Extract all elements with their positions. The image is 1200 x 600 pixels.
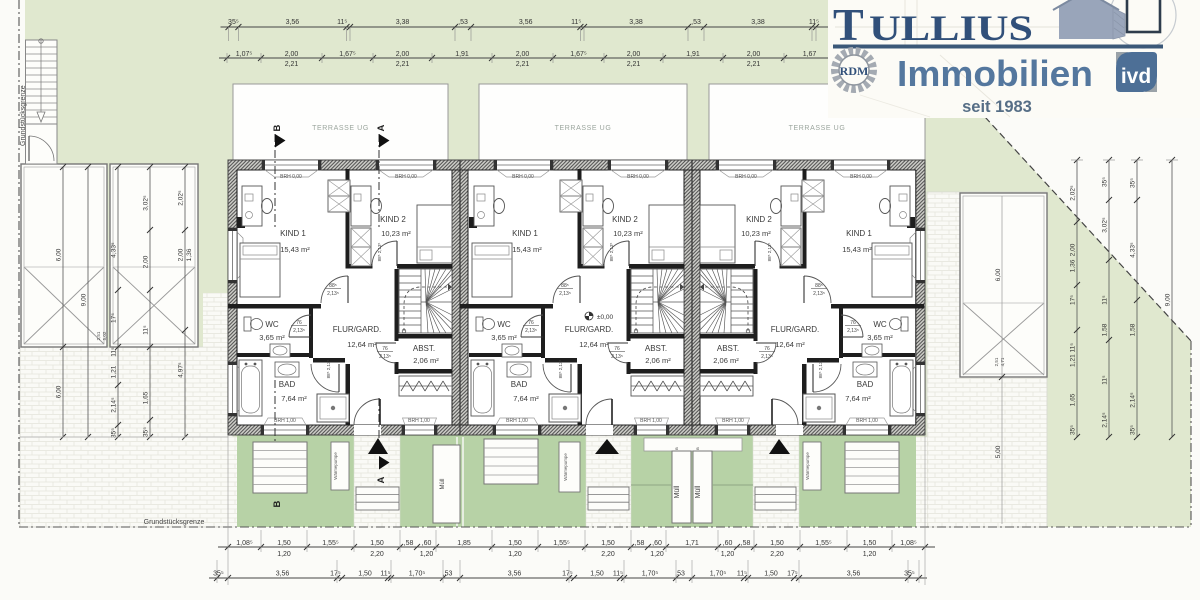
svg-text:BRH 1,00: BRH 1,00 <box>856 418 878 424</box>
svg-text:88⁵ 2,13⁵: 88⁵ 2,13⁵ <box>326 359 331 378</box>
svg-text:,53: ,53 <box>458 19 468 26</box>
svg-text:ABST.: ABST. <box>717 344 739 353</box>
svg-text:1,55⁵: 1,55⁵ <box>553 540 570 547</box>
svg-text:1,67⁵: 1,67⁵ <box>339 51 356 58</box>
svg-text:BRH 0,00: BRH 0,00 <box>280 174 302 180</box>
svg-text:BAD: BAD <box>279 380 296 389</box>
svg-text:Müll: Müll <box>440 478 446 489</box>
svg-text:2,14⁵: 2,14⁵ <box>111 397 118 413</box>
svg-text:BRH 1,00: BRH 1,00 <box>640 418 662 424</box>
svg-text:11⁵: 11⁵ <box>571 19 581 26</box>
svg-text:9,00: 9,00 <box>1165 293 1172 306</box>
svg-text:2,14⁵: 2,14⁵ <box>1102 412 1109 428</box>
svg-text:2,06 m²: 2,06 m² <box>413 356 439 365</box>
svg-text:2,13⁵: 2,13⁵ <box>327 291 339 297</box>
svg-text:1,20: 1,20 <box>420 551 434 558</box>
svg-text:2,06 m²: 2,06 m² <box>645 356 671 365</box>
svg-text:2,20: 2,20 <box>770 551 784 558</box>
svg-text:FLUR/GARD.: FLUR/GARD. <box>771 325 819 334</box>
svg-text:10,23 m²: 10,23 m² <box>381 229 411 238</box>
svg-text:35⁵: 35⁵ <box>1070 425 1077 435</box>
svg-text:76: 76 <box>850 320 856 326</box>
svg-text:,60: ,60 <box>422 540 432 547</box>
svg-text:1,50: 1,50 <box>358 571 372 578</box>
svg-text:Wärmepumpe: Wärmepumpe <box>805 452 810 480</box>
svg-text:BRH 0,00: BRH 0,00 <box>395 174 417 180</box>
svg-text:BRH 1,00: BRH 1,00 <box>274 418 296 424</box>
svg-text:3,65 m²: 3,65 m² <box>491 333 517 342</box>
svg-text:76: 76 <box>382 346 388 352</box>
svg-text:3,56: 3,56 <box>286 19 300 26</box>
svg-text:17⁵: 17⁵ <box>787 571 798 578</box>
svg-text:1,67⁵: 1,67⁵ <box>570 51 587 58</box>
svg-text:11⁵: 11⁵ <box>809 19 819 26</box>
svg-text:4,33⁵: 4,33⁵ <box>1130 242 1137 258</box>
svg-text:2,13⁵: 2,13⁵ <box>813 291 825 297</box>
svg-text:2,13⁵: 2,13⁵ <box>293 328 305 334</box>
svg-text:35⁵: 35⁵ <box>213 571 224 578</box>
svg-text:35⁵: 35⁵ <box>228 19 239 26</box>
svg-text:2,21: 2,21 <box>747 61 761 68</box>
svg-text:FLUR/GARD.: FLUR/GARD. <box>565 325 613 334</box>
svg-text:,53: ,53 <box>443 571 453 578</box>
svg-text:3,65 m²: 3,65 m² <box>259 333 285 342</box>
svg-text:2,02⁵: 2,02⁵ <box>1070 185 1077 201</box>
svg-text:76: 76 <box>764 346 770 352</box>
svg-text:FLUR/GARD.: FLUR/GARD. <box>333 325 381 334</box>
svg-text:6,00: 6,00 <box>56 385 63 398</box>
svg-text:2,00: 2,00 <box>396 51 410 58</box>
svg-text:1,20: 1,20 <box>650 551 664 558</box>
svg-text:2,21: 2,21 <box>285 61 299 68</box>
svg-text:35⁵: 35⁵ <box>143 427 150 437</box>
svg-text:TERRASSE UG: TERRASSE UG <box>555 125 612 132</box>
svg-text:BAD: BAD <box>857 380 874 389</box>
svg-text:7,64 m²: 7,64 m² <box>845 394 871 403</box>
svg-text:2,13⁵: 2,13⁵ <box>761 354 773 360</box>
svg-text:7,64 m²: 7,64 m² <box>281 394 307 403</box>
svg-text:1,20: 1,20 <box>508 551 522 558</box>
svg-text:1,65: 1,65 <box>1070 393 1077 406</box>
svg-text:1,50: 1,50 <box>764 571 778 578</box>
svg-text:ivd: ivd <box>1121 65 1151 88</box>
svg-text:BRH 1,00: BRH 1,00 <box>722 418 744 424</box>
svg-text:WC: WC <box>873 320 887 329</box>
svg-text:11⁵: 11⁵ <box>613 571 623 578</box>
svg-text:88⁵ 2,13⁵: 88⁵ 2,13⁵ <box>767 242 772 261</box>
svg-text:2,02⁵: 2,02⁵ <box>178 190 185 206</box>
svg-text:BRH 0,00: BRH 0,00 <box>627 174 649 180</box>
svg-text:,58: ,58 <box>741 540 751 547</box>
svg-text:KIND 2: KIND 2 <box>612 215 638 224</box>
svg-text:17⁵: 17⁵ <box>562 571 573 578</box>
svg-text:Grundstücksgrenze: Grundstücksgrenze <box>20 85 27 146</box>
svg-text:1,58: 1,58 <box>1102 323 1109 336</box>
svg-text:3,56: 3,56 <box>508 571 522 578</box>
svg-text:1,71: 1,71 <box>685 540 699 547</box>
svg-text:1,50: 1,50 <box>770 540 784 547</box>
svg-text:76: 76 <box>528 320 534 326</box>
svg-text:6,00: 6,00 <box>995 268 1002 281</box>
svg-text:11⁵: 11⁵ <box>143 325 150 335</box>
svg-text:BAD: BAD <box>511 380 528 389</box>
svg-text:Müll: Müll <box>674 485 681 498</box>
svg-text:B: B <box>272 124 283 131</box>
svg-text:2,00: 2,00 <box>178 248 185 261</box>
svg-text:17⁵: 17⁵ <box>111 313 118 323</box>
svg-text:1,50: 1,50 <box>370 540 384 547</box>
svg-text:3,56: 3,56 <box>519 19 533 26</box>
svg-text:4,71: 4,71 <box>1000 357 1005 366</box>
svg-text:1,08⁵: 1,08⁵ <box>236 540 253 547</box>
svg-text:2,20: 2,20 <box>370 551 384 558</box>
svg-text:76: 76 <box>296 320 302 326</box>
svg-text:KIND 1: KIND 1 <box>512 229 538 238</box>
svg-text:B: B <box>674 447 679 450</box>
svg-text:6,00: 6,00 <box>56 248 63 261</box>
svg-text:1,50: 1,50 <box>863 540 877 547</box>
svg-text:KIND 2: KIND 2 <box>380 215 406 224</box>
svg-text:,53: ,53 <box>691 19 701 26</box>
svg-text:17⁵: 17⁵ <box>330 571 341 578</box>
svg-text:1,91: 1,91 <box>455 51 469 58</box>
svg-text:A: A <box>376 124 387 131</box>
svg-text:12,64 m²: 12,64 m² <box>347 340 377 349</box>
svg-text:2,00: 2,00 <box>516 51 530 58</box>
svg-text:2,06 m²: 2,06 m² <box>713 356 739 365</box>
svg-text:1,21 11⁵: 1,21 11⁵ <box>1070 343 1077 367</box>
svg-text:A: A <box>376 476 387 483</box>
svg-text:2,21: 2,21 <box>627 61 641 68</box>
svg-text:3,65 m²: 3,65 m² <box>867 333 893 342</box>
svg-text:4,97⁵: 4,97⁵ <box>178 362 185 378</box>
svg-text:Wärmepumpe: Wärmepumpe <box>333 452 338 480</box>
svg-text:1,58: 1,58 <box>1130 323 1137 336</box>
svg-text:1,36: 1,36 <box>1070 259 1077 272</box>
svg-text:1,70⁵: 1,70⁵ <box>642 571 659 578</box>
svg-text:seit 1983: seit 1983 <box>962 98 1032 116</box>
svg-text:88⁵ 2,13⁵: 88⁵ 2,13⁵ <box>558 359 563 378</box>
svg-text:7,64 m²: 7,64 m² <box>513 394 539 403</box>
svg-text:15,43 m²: 15,43 m² <box>842 245 872 254</box>
svg-text:BRH 1,00: BRH 1,00 <box>506 418 528 424</box>
svg-text:1,21: 1,21 <box>111 365 118 378</box>
svg-text:,60: ,60 <box>723 540 733 547</box>
svg-text:1,20: 1,20 <box>277 551 291 558</box>
svg-text:,60: ,60 <box>652 540 662 547</box>
svg-text:3,38: 3,38 <box>629 19 643 26</box>
svg-text:88⁵: 88⁵ <box>329 283 337 289</box>
svg-text:2,21: 2,21 <box>396 61 410 68</box>
svg-text:15,43 m²: 15,43 m² <box>280 245 310 254</box>
svg-text:2,13⁵: 2,13⁵ <box>847 328 859 334</box>
svg-text:TERRASSE UG: TERRASSE UG <box>312 125 369 132</box>
svg-text:1,20: 1,20 <box>721 551 735 558</box>
svg-text:±0,00: ±0,00 <box>597 314 614 321</box>
svg-text:3,02⁵: 3,02⁵ <box>143 195 150 211</box>
svg-text:35⁵: 35⁵ <box>904 571 915 578</box>
svg-text:10,23 m²: 10,23 m² <box>741 229 771 238</box>
svg-text:88⁵: 88⁵ <box>561 283 569 289</box>
svg-text:B: B <box>272 500 283 507</box>
svg-text:B: B <box>695 447 700 450</box>
svg-text:11⁵: 11⁵ <box>111 347 118 357</box>
svg-text:T: T <box>833 0 864 50</box>
svg-text:35⁵: 35⁵ <box>1130 425 1137 435</box>
svg-text:10,23 m²: 10,23 m² <box>613 229 643 238</box>
svg-text:,58: ,58 <box>635 540 645 547</box>
svg-text:WC: WC <box>265 320 279 329</box>
svg-text:11⁵: 11⁵ <box>380 571 390 578</box>
svg-text:KIND 2: KIND 2 <box>746 215 772 224</box>
svg-text:WC: WC <box>497 320 511 329</box>
svg-text:KIND 1: KIND 1 <box>280 229 306 238</box>
svg-text:2,13⁵: 2,13⁵ <box>611 354 623 360</box>
svg-text:1,07⁵: 1,07⁵ <box>236 51 253 58</box>
svg-text:2,13⁵: 2,13⁵ <box>379 354 391 360</box>
svg-text:BRH 0,00: BRH 0,00 <box>850 174 872 180</box>
svg-text:76: 76 <box>614 346 620 352</box>
svg-text:Grundstücksgrenze: Grundstücksgrenze <box>144 519 205 526</box>
svg-text:11⁵: 11⁵ <box>1102 295 1109 305</box>
svg-text:1,91: 1,91 <box>686 51 700 58</box>
svg-text:35⁵: 35⁵ <box>1130 178 1137 188</box>
svg-text:TERRASSE UG: TERRASSE UG <box>789 125 846 132</box>
svg-text:1,70⁵: 1,70⁵ <box>710 571 727 578</box>
svg-text:1,55⁵: 1,55⁵ <box>322 540 339 547</box>
svg-text:12,64 m²: 12,64 m² <box>775 340 805 349</box>
svg-text:ABST.: ABST. <box>413 344 435 353</box>
svg-text:ULLIUS: ULLIUS <box>869 8 1033 48</box>
svg-text:1,36: 1,36 <box>186 248 193 261</box>
svg-text:15,43 m²: 15,43 m² <box>512 245 542 254</box>
svg-text:BRH 0,00: BRH 0,00 <box>512 174 534 180</box>
svg-text:3,02⁵: 3,02⁵ <box>1102 217 1109 233</box>
svg-text:1,65: 1,65 <box>143 391 150 404</box>
svg-text:1,50: 1,50 <box>590 571 604 578</box>
svg-text:1,20: 1,20 <box>863 551 877 558</box>
svg-text:9,00: 9,00 <box>81 293 88 306</box>
svg-text:3,38: 3,38 <box>396 19 410 26</box>
svg-text:2,00: 2,00 <box>285 51 299 58</box>
svg-text:1,85: 1,85 <box>457 540 471 547</box>
svg-text:1,08⁵: 1,08⁵ <box>900 540 917 547</box>
svg-text:5,02: 5,02 <box>102 331 107 340</box>
svg-text:3,38: 3,38 <box>751 19 765 26</box>
svg-text:2,13⁵: 2,13⁵ <box>559 291 571 297</box>
svg-text:Wärmepumpe: Wärmepumpe <box>563 453 568 481</box>
svg-text:KIND 1: KIND 1 <box>846 229 872 238</box>
svg-text:88⁵ 2,13⁵: 88⁵ 2,13⁵ <box>818 359 823 378</box>
svg-text:,53: ,53 <box>675 571 685 578</box>
svg-text:1,50: 1,50 <box>601 540 615 547</box>
svg-text:2,20: 2,20 <box>601 551 615 558</box>
svg-text:2,14⁵: 2,14⁵ <box>1130 392 1137 408</box>
svg-text:1,50: 1,50 <box>277 540 291 547</box>
svg-text:17⁵: 17⁵ <box>1070 295 1077 305</box>
svg-text:1,70⁵: 1,70⁵ <box>409 571 426 578</box>
svg-text:12,64 m²: 12,64 m² <box>579 340 609 349</box>
svg-text:,58: ,58 <box>404 540 414 547</box>
svg-text:88⁵: 88⁵ <box>815 283 823 289</box>
svg-text:BRH 1,00: BRH 1,00 <box>408 418 430 424</box>
svg-text:2,00: 2,00 <box>1070 243 1077 256</box>
svg-text:2,00: 2,00 <box>747 51 761 58</box>
svg-text:4,33⁵: 4,33⁵ <box>111 242 118 258</box>
svg-text:1,67: 1,67 <box>803 51 817 58</box>
svg-text:3,56: 3,56 <box>276 571 290 578</box>
svg-text:35⁵: 35⁵ <box>1102 177 1109 187</box>
svg-text:2,21: 2,21 <box>516 61 530 68</box>
svg-text:88⁵ 2,13⁵: 88⁵ 2,13⁵ <box>377 242 382 261</box>
svg-text:2,00: 2,00 <box>143 255 150 268</box>
svg-text:11⁵: 11⁵ <box>1102 375 1109 385</box>
svg-text:5,00: 5,00 <box>995 445 1002 458</box>
svg-text:88⁵ 2,13⁵: 88⁵ 2,13⁵ <box>609 242 614 261</box>
svg-text:Müll: Müll <box>695 485 702 498</box>
svg-text:ABST.: ABST. <box>645 344 667 353</box>
svg-text:11⁵: 11⁵ <box>737 571 747 578</box>
svg-text:2,51: 2,51 <box>994 357 999 366</box>
svg-text:RDM: RDM <box>840 64 869 78</box>
svg-text:2,13⁵: 2,13⁵ <box>525 328 537 334</box>
svg-text:BRH 0,00: BRH 0,00 <box>735 174 757 180</box>
svg-text:Immobilien: Immobilien <box>897 53 1093 94</box>
svg-text:1,55⁵: 1,55⁵ <box>815 540 832 547</box>
svg-text:35⁵: 35⁵ <box>111 428 118 438</box>
svg-text:2,51: 2,51 <box>96 331 101 340</box>
svg-text:1,50: 1,50 <box>508 540 522 547</box>
svg-text:11⁵: 11⁵ <box>337 19 347 26</box>
svg-text:2,00: 2,00 <box>627 51 641 58</box>
svg-text:3,56: 3,56 <box>847 571 861 578</box>
